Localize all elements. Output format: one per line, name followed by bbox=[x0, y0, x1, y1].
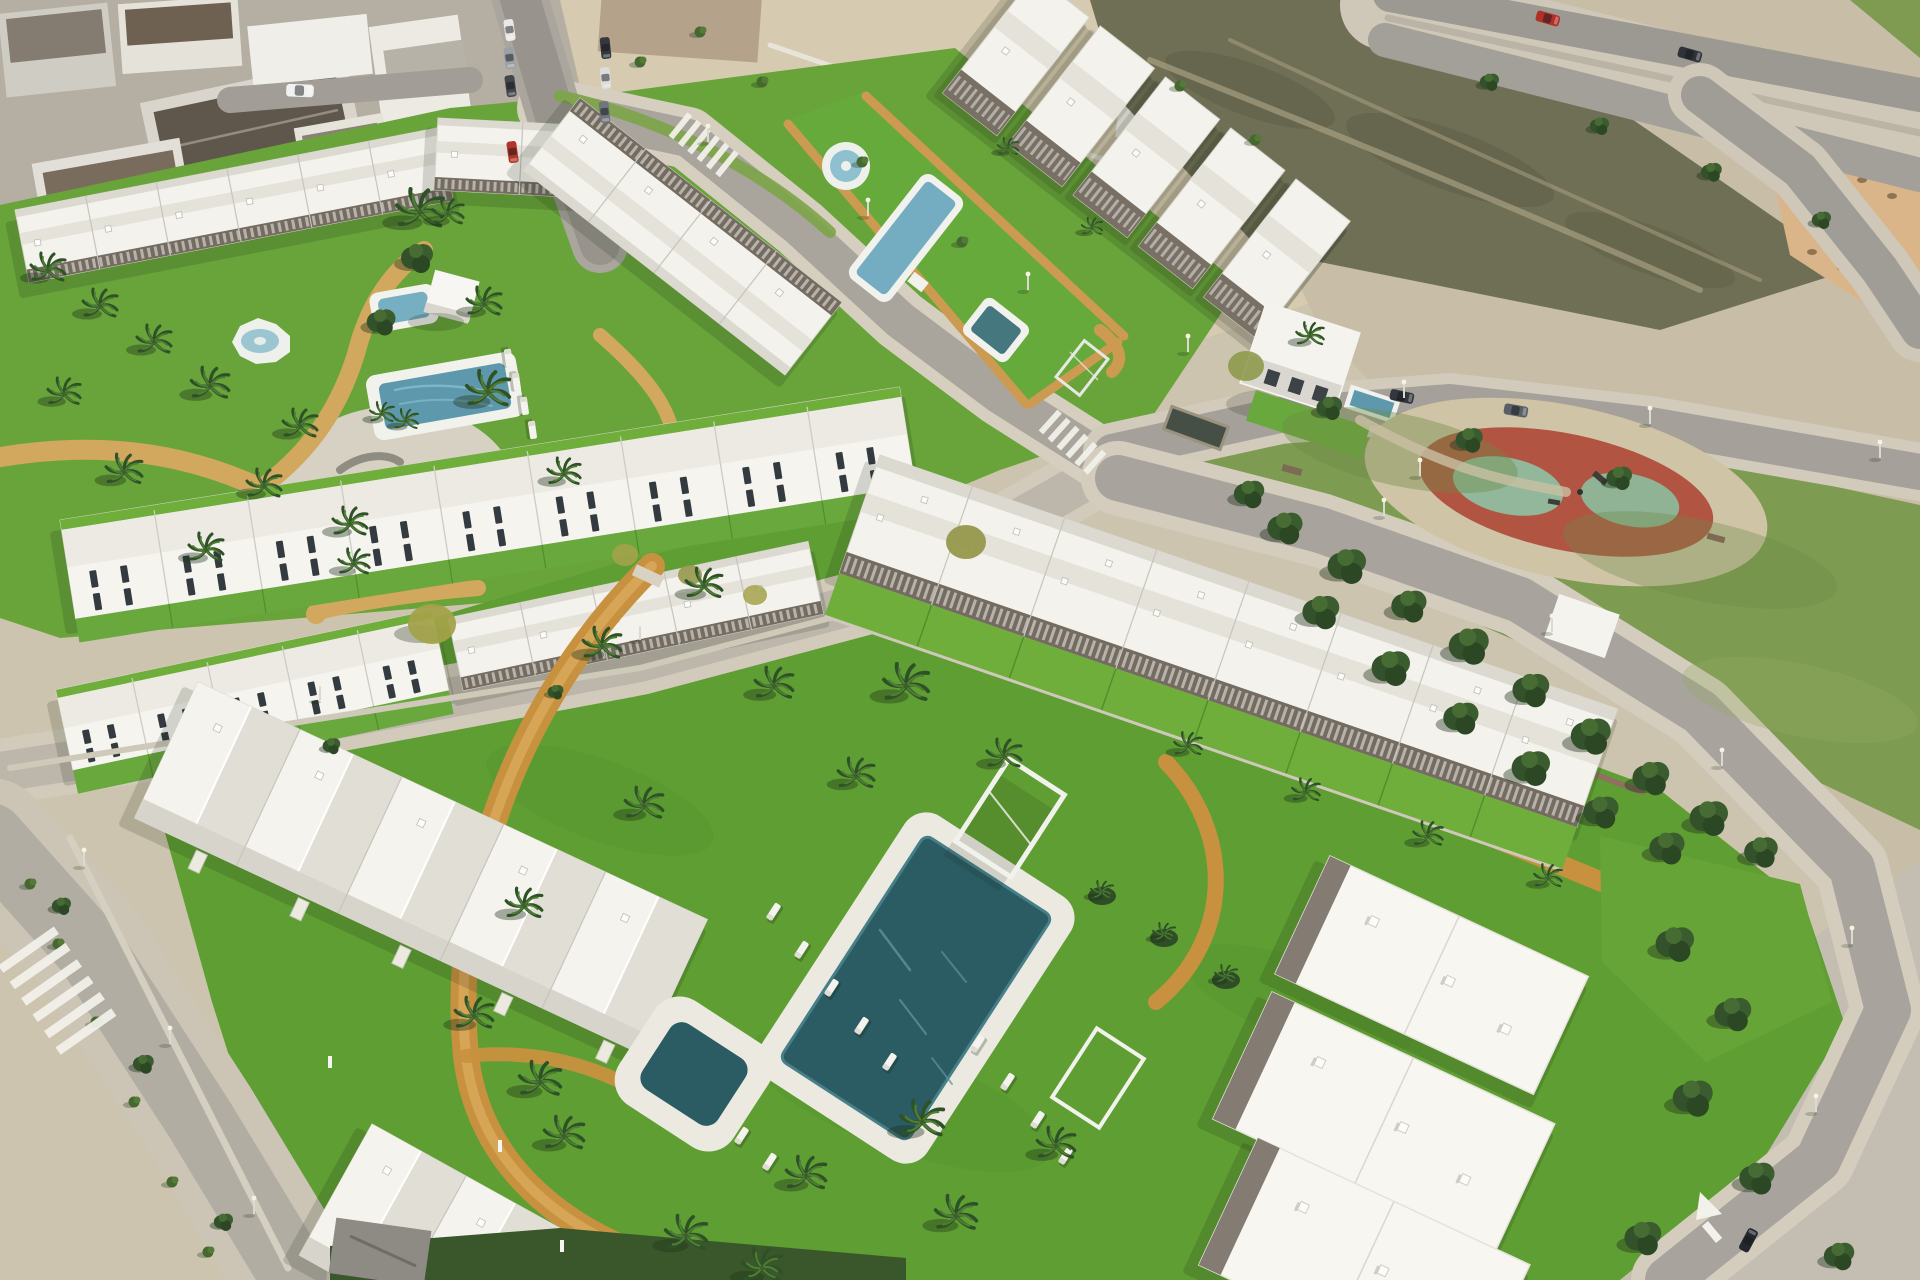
olive-tree bbox=[946, 525, 986, 559]
cube-shadow bbox=[408, 313, 464, 331]
dirt-mound bbox=[1887, 193, 1897, 199]
fountain-jet bbox=[841, 161, 851, 171]
olive-tree bbox=[408, 604, 456, 644]
render-canvas bbox=[0, 0, 1920, 1280]
olive-tree bbox=[1228, 351, 1264, 381]
path-bollard bbox=[560, 1240, 564, 1252]
city-roof bbox=[125, 2, 233, 45]
aerial-development-render bbox=[0, 0, 1920, 1280]
path-bollard bbox=[498, 1140, 502, 1152]
scene-layers bbox=[0, 0, 1920, 1280]
white-van bbox=[286, 84, 314, 98]
path-bollard bbox=[328, 1056, 332, 1068]
olive-tree bbox=[612, 544, 638, 566]
city-building bbox=[247, 14, 373, 86]
dirt-mound bbox=[1807, 249, 1817, 255]
play-equipment bbox=[1577, 489, 1583, 495]
olive-tree bbox=[743, 585, 767, 605]
fountain-jet bbox=[254, 337, 266, 345]
